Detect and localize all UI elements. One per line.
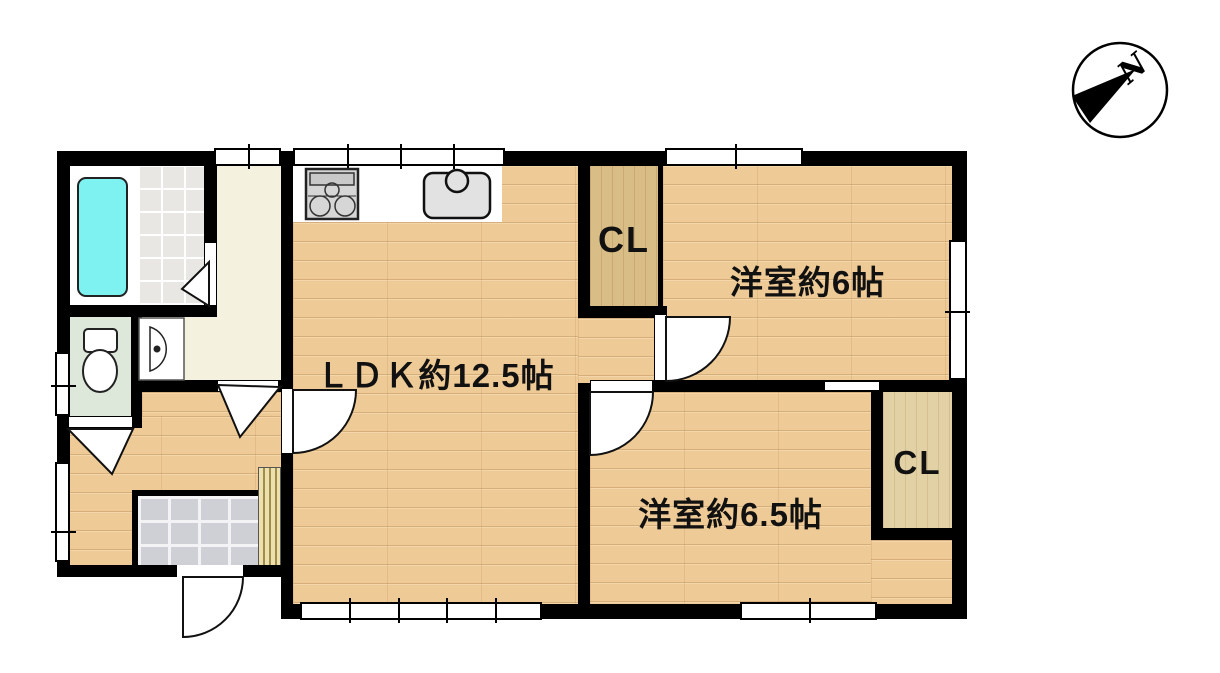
closet-label-south: CL — [883, 444, 952, 482]
toilet-icon — [83, 329, 117, 392]
kitchen-sink-icon — [424, 170, 490, 218]
door-swing-ldk — [293, 390, 356, 453]
floor-plan: N ＬＤＫ約12.5帖 洋室約6帖 洋室約6.5帖 CL CL — [0, 0, 1220, 673]
room-label-western-6: 洋室約6帖 — [663, 256, 952, 304]
symbols-overlay: N — [0, 0, 1220, 673]
door-swing-room6 — [666, 317, 730, 381]
door-wedge-toilet — [68, 429, 133, 474]
stove-icon — [306, 169, 358, 219]
room-label-ldk: ＬＤＫ約12.5帖 — [293, 349, 578, 397]
door-swing-entrance — [183, 577, 243, 637]
door-swing-room65 — [590, 392, 653, 455]
closet-label-north: CL — [588, 219, 660, 261]
compass: N — [1072, 43, 1167, 137]
door-wedge-bathroom — [182, 262, 209, 306]
door-wedge-washroom — [218, 385, 280, 437]
room-label-western-6-5: 洋室約6.5帖 — [590, 488, 871, 536]
washbasin-icon — [139, 318, 184, 380]
